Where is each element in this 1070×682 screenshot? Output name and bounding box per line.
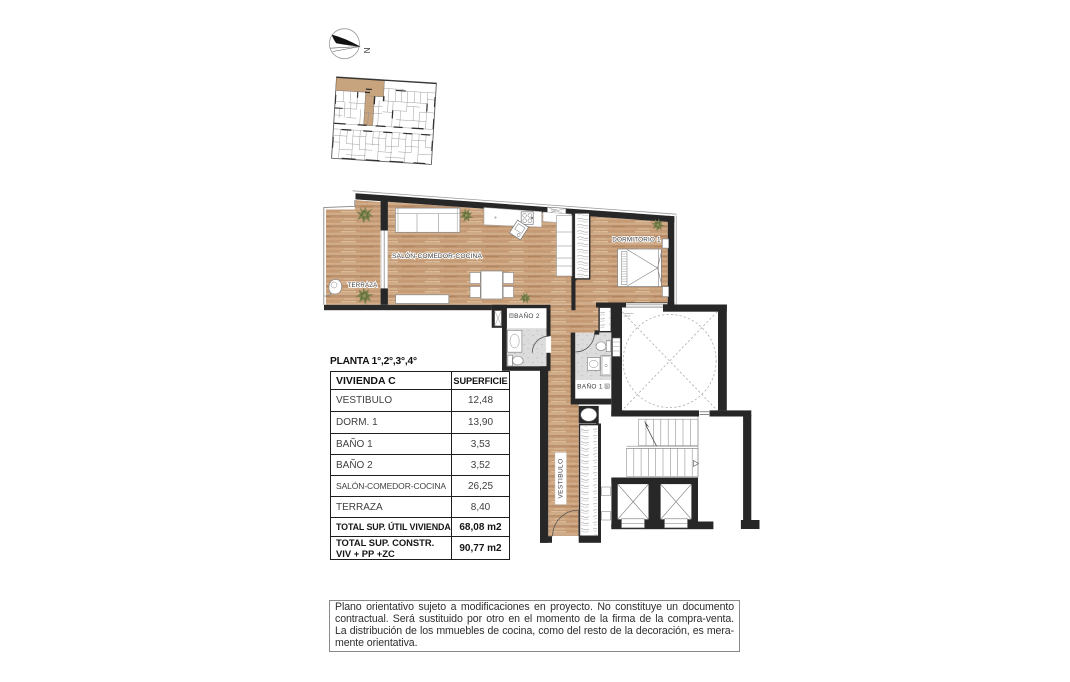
svg-text:N: N	[362, 48, 371, 54]
svg-text:BAÑO 1: BAÑO 1	[577, 382, 603, 391]
svg-text:DORMITORIO 1: DORMITORIO 1	[612, 237, 661, 244]
svg-text:SALÓN-COMEDOR-COCINA: SALÓN-COMEDOR-COCINA	[392, 251, 482, 260]
svg-text:BAÑO 2: BAÑO 2	[514, 311, 540, 320]
svg-text:TERRAZA: TERRAZA	[348, 282, 379, 289]
svg-text:VESTIBULO: VESTIBULO	[558, 458, 565, 498]
